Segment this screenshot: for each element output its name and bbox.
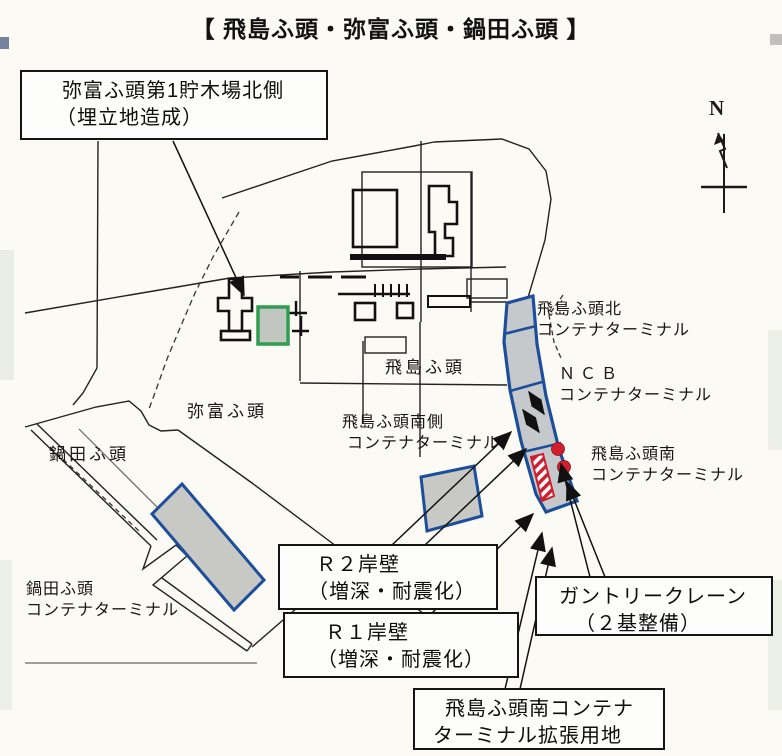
callout-line: ガントリークレーン <box>559 584 771 610</box>
north-arrow-icon <box>701 133 747 213</box>
label-yatomi-pier: 弥富ふ頭 <box>187 401 267 422</box>
callout-line: （増深・耐震化） <box>308 579 496 605</box>
label-line: コンテナターミナル <box>591 465 744 486</box>
label-line: 飛島ふ頭南側 <box>342 412 500 433</box>
compass-north-label: N <box>709 96 724 121</box>
label-line: コンテナターミナル <box>559 385 712 406</box>
leader-yatomi-lumber <box>173 141 244 295</box>
callout-line: Ｒ２岸壁 <box>316 552 496 578</box>
callout-yatomi-lumber: 弥富ふ頭第1貯木場北側 （埋立地造成） <box>20 70 328 140</box>
callout-r2-quay: Ｒ２岸壁 （増深・耐震化） <box>278 544 498 610</box>
label-tobishima-north-ct: 飛島ふ頭北 コンテナターミナル <box>537 299 690 341</box>
label-line: コンテナターミナル <box>537 320 690 341</box>
building-outlines <box>218 186 470 340</box>
callout-line: ターミナル拡張用地 <box>433 723 663 749</box>
callout-line: 弥富ふ頭第1貯木場北側 <box>62 78 326 104</box>
label-ncb-ct: ＮＣＢ コンテナターミナル <box>559 364 712 406</box>
page-title: 【 飛島ふ頭・弥富ふ頭・鍋田ふ頭 】 <box>0 10 782 44</box>
callout-line: Ｒ１岸壁 <box>325 620 517 646</box>
gantry-crane-dot <box>558 461 571 474</box>
railway-dashed-line <box>50 212 563 531</box>
label-line: ＮＣＢ <box>559 364 712 385</box>
callout-line: 飛島ふ頭南コンテナ <box>445 696 663 722</box>
label-line: コンテナターミナル <box>26 600 179 621</box>
callout-line: （埋立地造成） <box>56 105 326 131</box>
callout-expansion-site: 飛島ふ頭南コンテナ ターミナル拡張用地 <box>413 688 665 750</box>
callout-line: （２基整備） <box>575 611 771 637</box>
label-tobishima-pier: 飛島ふ頭 <box>385 357 465 378</box>
label-tobishima-southside-ct: 飛島ふ頭南側 コンテナターミナル <box>342 412 500 454</box>
callout-gantry-crane: ガントリークレーン （２基整備） <box>535 576 773 636</box>
port-map-figure: 【 飛島ふ頭・弥富ふ頭・鍋田ふ頭 】 N 飛島ふ頭 弥富ふ頭 鍋田ふ頭 飛島ふ頭… <box>0 0 782 756</box>
label-tobishima-south-ct: 飛島ふ頭南 コンテナターミナル <box>591 444 744 486</box>
callout-r1-quay: Ｒ１岸壁 （増深・耐震化） <box>283 612 519 678</box>
label-nabeta-ct: 鍋田ふ頭 コンテナターミナル <box>26 579 179 621</box>
label-line: 飛島ふ頭北 <box>537 299 690 320</box>
label-nabeta-pier: 鍋田ふ頭 <box>49 444 129 465</box>
gantry-crane-dot <box>552 443 565 456</box>
label-line: コンテナターミナル <box>347 433 500 454</box>
yatomi-reclamation-site <box>258 307 288 344</box>
label-line: 鍋田ふ頭 <box>26 579 179 600</box>
leader-gantry-a <box>561 464 590 577</box>
callout-line: （増深・耐震化） <box>317 647 517 673</box>
label-line: 飛島ふ頭南 <box>591 444 744 465</box>
